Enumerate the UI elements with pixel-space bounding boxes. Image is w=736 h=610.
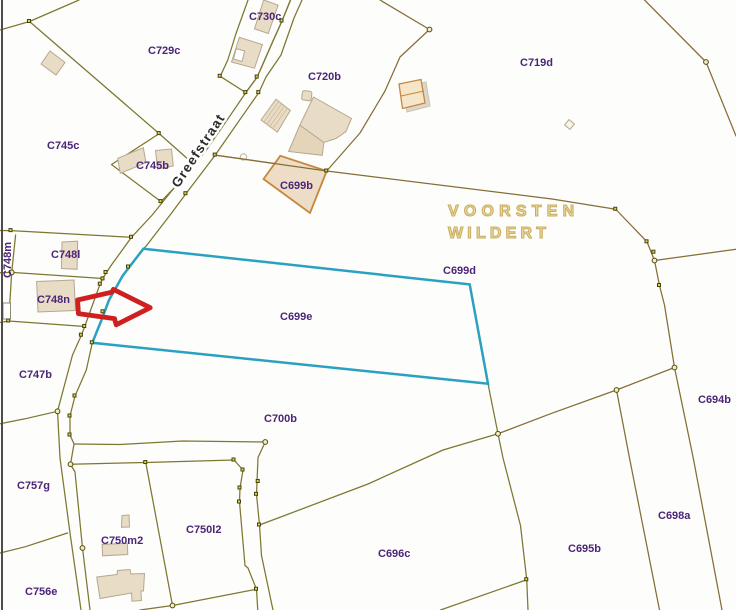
svg-text:C694b: C694b — [698, 394, 731, 406]
svg-text:C748m: C748m — [2, 242, 14, 278]
svg-text:C696c: C696c — [378, 548, 410, 560]
svg-text:C700b: C700b — [264, 413, 297, 425]
svg-text:C720b: C720b — [308, 71, 341, 83]
svg-text:C756e: C756e — [25, 586, 57, 598]
svg-text:VOORSTEN: VOORSTEN — [448, 203, 579, 220]
svg-text:C730c: C730c — [249, 11, 281, 23]
svg-text:C745c: C745c — [47, 140, 79, 152]
svg-text:C750l2: C750l2 — [186, 524, 221, 536]
svg-text:C757g: C757g — [17, 480, 50, 492]
svg-text:C745b: C745b — [136, 160, 169, 172]
svg-text:C748l: C748l — [51, 249, 80, 261]
svg-text:C729c: C729c — [148, 45, 180, 57]
svg-text:C699d: C699d — [443, 265, 476, 277]
svg-text:WILDERT: WILDERT — [448, 225, 550, 242]
svg-text:C750m2: C750m2 — [101, 535, 143, 547]
svg-text:C698a: C698a — [658, 510, 691, 522]
svg-text:C699e: C699e — [280, 311, 312, 323]
svg-text:C747b: C747b — [19, 369, 52, 381]
svg-text:C719d: C719d — [520, 57, 553, 69]
svg-text:C699b: C699b — [280, 180, 313, 192]
svg-text:C748n: C748n — [37, 294, 70, 306]
svg-text:C695b: C695b — [568, 543, 601, 555]
